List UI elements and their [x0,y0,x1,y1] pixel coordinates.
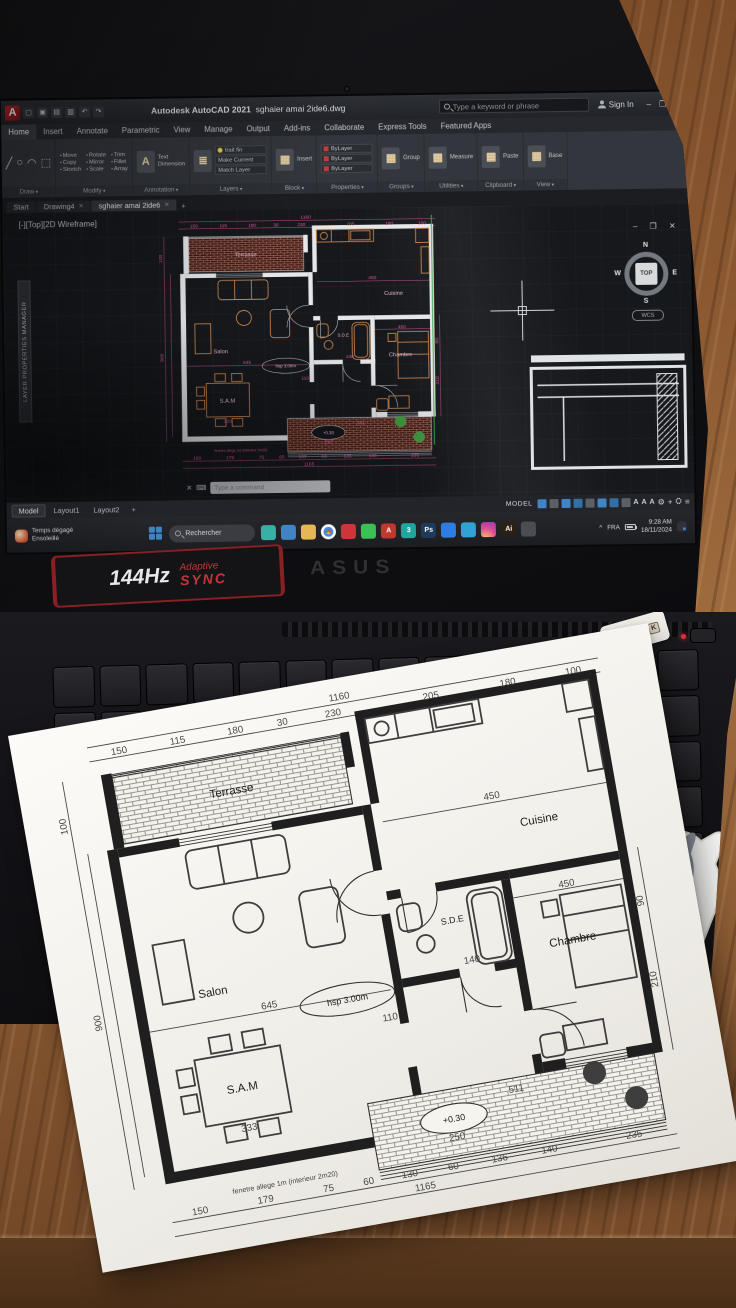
taskbar-app-3ds-max-icon[interactable]: 3 [401,523,416,538]
annotation-visibility-icon[interactable]: A [641,498,646,505]
panel-body: ▦Measure [424,133,477,181]
file-tab-start[interactable]: Start [6,201,36,212]
weather-widget[interactable]: Temps dégagé Ensoleillé [15,527,74,544]
svg-text:fenetre allege 1m (interieur 2: fenetre allege 1m (interieur 2m20) [232,1170,338,1196]
window-title: Autodesk AutoCAD 2021 sghaier amai 2ide6… [151,103,345,116]
layer-properties-icon[interactable]: ≣ [194,149,212,171]
svg-text:180: 180 [385,221,393,227]
ribbon-tab-manage[interactable]: Manage [197,121,239,137]
text-tool[interactable]: Text [158,154,185,160]
svg-text:110: 110 [382,1011,400,1025]
viewcube-south[interactable]: S [644,298,649,305]
taskbar-app-acrobat-icon[interactable] [341,523,356,538]
ribbon-panel-draw: ╱○◠⬚Draw [1,139,56,198]
close-tab-icon[interactable]: ✕ [164,201,169,208]
photo-scene: A ▢ ▣ ▤ ▥ ↶ ↷ Autodesk AutoCAD 2021 sgha… [0,0,736,1308]
transparency-toggle-icon[interactable] [621,498,630,507]
customization-menu-icon[interactable]: ≡ [685,497,690,506]
panel-title[interactable]: Utilities [425,180,477,192]
ribbon-tab-insert[interactable]: Insert [36,124,70,139]
status-bar: MODEL A A A ⚙ + ⛭ ≡ [506,496,690,509]
svg-text:645: 645 [260,999,278,1013]
snap-toggle-icon[interactable] [549,499,558,508]
plot-icon[interactable]: ▥ [65,106,76,117]
ribbon-tab-add-ins[interactable]: Add-ins [277,120,318,136]
tab-model[interactable]: Model [12,504,46,517]
svg-text:30: 30 [273,222,279,228]
taskbar-app-whatsapp-icon[interactable] [361,523,376,538]
paste-tool-icon[interactable]: ▦ [482,145,500,167]
svg-text:Cuisine: Cuisine [519,811,559,829]
bylayer-dropdown[interactable]: ByLayer [321,164,373,174]
help-search-input[interactable]: Type a keyword or phrase [439,98,589,114]
hidden-icons-caret[interactable]: ^ [599,524,602,531]
layer-tool[interactable]: Match Layer [215,165,267,175]
system-tray: ^ FRA 9:28 AM 18/11/2024 [599,518,687,535]
svg-text:136: 136 [344,453,352,459]
language-indicator[interactable]: FRA [607,524,620,531]
svg-text:Terrasse: Terrasse [235,252,257,258]
taskbar-app-file-explorer-icon[interactable] [281,524,296,539]
autocad-window: A ▢ ▣ ▤ ▥ ↶ ↷ Autodesk AutoCAD 2021 sgha… [1,91,695,553]
panel-body: ByLayerByLayerByLayer [317,135,378,183]
svg-text:S.D.E: S.D.E [338,333,350,338]
file-tab-drawing4[interactable]: Drawing4✕ [37,201,91,213]
svg-text:S.D.E: S.D.E [440,913,465,927]
svg-text:110: 110 [301,375,309,381]
user-icon [598,100,606,108]
group-tool-icon[interactable]: ▦ [382,147,400,169]
weather-line2: Ensoleillé [32,535,73,543]
battery-icon[interactable] [625,524,636,530]
command-line[interactable]: ✕ ⌨ Type a command [186,480,330,494]
search-icon [175,530,181,536]
wcs-menu[interactable]: WCS [632,310,664,321]
insert-tool-label: Insert [297,156,312,162]
panel-title[interactable]: Annotation [133,184,190,196]
taskbar-app-instagram-icon[interactable] [481,521,496,536]
webcam-dot [344,86,350,92]
panel-body: ≣trait finMake CurrentMatch Layer [190,136,272,184]
taskbar-app-illustrator-icon[interactable]: Ai [501,521,516,536]
layer-properties-palette-tab[interactable]: LAYER PROPERTIES MANAGER [17,280,32,422]
layer-tool[interactable]: Make Current [215,155,267,165]
svg-text:150: 150 [190,223,198,229]
asus-bezel-logo: ASUS [310,556,397,579]
svg-text:75: 75 [259,454,265,460]
panel-body: ATextDimension [132,137,189,185]
panel-title[interactable]: Block [272,182,316,194]
key[interactable] [657,649,700,691]
svg-text:S.A.M: S.A.M [226,1080,259,1097]
svg-text:115: 115 [169,734,187,748]
svg-text:90: 90 [634,894,647,907]
svg-text:+0.30: +0.30 [323,430,335,435]
viewcube-east[interactable]: E [672,269,677,276]
copy-tool[interactable]: Copy [60,159,81,165]
svg-text:230: 230 [324,707,342,721]
close-command-icon[interactable]: ✕ [186,484,192,492]
svg-text:60: 60 [322,454,328,460]
svg-text:130: 130 [298,454,306,460]
taskbar-app-telegram-icon[interactable] [461,522,476,537]
scale-tool[interactable]: Scale [86,166,106,172]
svg-text:Chambre: Chambre [389,352,413,358]
taskbar-app-adobe-icon[interactable]: A [381,523,396,538]
layer-dropdown[interactable]: trait fin [215,145,267,155]
panel-body: MoveRotateTrimCopyMirrorFilletStretchSca… [56,138,132,186]
polyline-tool-icon[interactable]: ○ [16,157,23,170]
cad-drawing: Terrasse Salon Cuisine S.D.E Chambre S.A… [2,203,694,503]
start-button[interactable] [149,527,163,541]
taskbar-app-folder-icon[interactable] [301,524,316,539]
drawing-canvas[interactable]: [-][Top][2D Wireframe] – ❐ ✕ LAYER PROPE… [2,203,694,503]
svg-text:179: 179 [226,455,234,461]
line-tool-icon[interactable]: ╱ [6,157,13,170]
svg-text:30: 30 [276,716,289,729]
power-button[interactable] [690,628,716,643]
search-icon [444,104,450,110]
measure-tool-label: Measure [450,154,473,160]
svg-text:Salon: Salon [197,984,228,1001]
panel-body: ▦Group [378,134,424,182]
save-icon[interactable]: ▤ [51,106,62,117]
panel-body: ╱○◠⬚ [1,139,55,187]
ribbon-tab-view[interactable]: View [166,122,197,137]
model-space-label[interactable]: MODEL [506,500,533,507]
array-tool[interactable]: Array [111,166,128,172]
viewcube[interactable]: N S W E TOP WCS [619,243,676,324]
viewcube-top-face[interactable]: TOP [635,263,657,285]
laptop-screen-assembly: A ▢ ▣ ▤ ▥ ↶ ↷ Autodesk AutoCAD 2021 sgha… [0,0,708,636]
paste-tool-label: Paste [503,153,518,159]
svg-text:1165: 1165 [414,1180,437,1195]
minimize-button[interactable]: – [647,99,652,108]
key[interactable] [99,665,142,707]
annotation-monitor-icon[interactable]: + [668,497,673,506]
mirror-tool[interactable]: Mirror [86,159,106,165]
svg-text:150: 150 [110,745,128,759]
svg-text:S.A.M: S.A.M [220,399,236,405]
svg-text:230: 230 [297,222,305,228]
layer-on-icon [218,148,223,153]
weather-icon [15,529,28,542]
panel-title[interactable]: View [524,179,567,191]
ribbon-panel-modify: MoveRotateTrimCopyMirrorFilletStretchSca… [56,138,133,197]
svg-text:900: 900 [160,353,166,361]
ortho-toggle-icon[interactable] [561,498,570,507]
ribbon-panel-layers: ≣trait finMake CurrentMatch LayerLayers [190,136,273,195]
new-file-icon[interactable]: ▢ [23,107,34,118]
panel-body: ▦Insert [272,135,317,183]
printed-floor-plan: Terrasse Salon Cuisine S.D.E Chambre S.A… [8,623,736,1273]
ribbon-tab-express-tools[interactable]: Express Tools [371,119,434,135]
svg-text:60: 60 [279,454,285,460]
ribbon-panel-annotation: ATextDimensionAnnotation [132,137,190,196]
base-tool-label: Base [549,152,563,158]
taskbar-app-edge-icon[interactable] [261,525,276,540]
ribbon-panel-properties: ByLayerByLayerByLayerProperties [317,135,379,194]
ribbon-panel-block: ▦InsertBlock [272,135,318,194]
svg-text:hsp 3.00m: hsp 3.00m [276,363,297,368]
panel-body: ▦Base [523,132,567,180]
svg-text:205: 205 [346,221,354,227]
key[interactable] [52,666,95,708]
grid-toggle-icon[interactable] [537,499,546,508]
trim-tool[interactable]: Trim [111,152,128,158]
ribbon-tab-output[interactable]: Output [239,121,277,137]
undo-icon[interactable]: ↶ [79,106,90,117]
svg-text:235: 235 [411,452,419,458]
ribbon-tab-collaborate[interactable]: Collaborate [317,120,371,136]
stretch-tool[interactable]: Stretch [60,166,81,172]
tray-date: 18/11/2024 [641,526,672,534]
fillet-tool[interactable]: Fillet [111,159,128,165]
svg-text:hsp 3.00m: hsp 3.00m [326,991,368,1008]
arc-tool-icon[interactable]: ⬚ [41,156,52,169]
svg-text:140: 140 [346,354,354,360]
floor-plan-drawing: Terrasse Salon Cuisine S.D.E Chambre S.A… [27,633,722,1263]
bylayer-dropdown[interactable]: ByLayer [321,154,373,164]
viewport-window-controls[interactable]: – ❐ ✕ [633,221,681,231]
group-tool-label: Group [403,154,420,160]
svg-text:333: 333 [224,418,232,424]
svg-text:60: 60 [363,1175,376,1188]
customize-command-icon[interactable]: ⌨ [196,484,206,492]
ribbon-panel-groups: ▦GroupGroups [378,134,425,193]
sign-in-button[interactable]: Sign In [598,99,634,109]
isolate-objects-icon[interactable]: ⛭ [675,496,682,506]
bylayer-dropdown[interactable]: ByLayer [321,144,373,154]
viewcube-west[interactable]: W [614,270,621,277]
window-controls: – ❐ ✕ [647,99,681,108]
ribbon-panel-utilities: ▦MeasureUtilities [424,133,478,192]
svg-text:333: 333 [241,1121,259,1135]
insert-tool-icon[interactable]: ▦ [276,148,294,170]
svg-text:1165: 1165 [304,461,315,467]
notification-bell-icon[interactable] [677,521,687,531]
open-icon[interactable]: ▣ [37,107,48,118]
ribbon-panel-clipboard: ▦PasteClipboard [478,133,524,192]
annotation-scale-icon[interactable]: A [633,498,638,505]
new-drawing-tab-button[interactable]: + [177,201,189,210]
panel-title[interactable]: Properties [317,182,377,194]
taskbar-app-chrome-icon[interactable] [321,524,336,539]
detail-drawing [531,353,686,468]
command-input[interactable]: Type a command [210,480,330,494]
ribbon: ╱○◠⬚DrawMoveRotateTrimCopyMirrorFilletSt… [1,130,690,198]
svg-text:Cuisine: Cuisine [384,291,403,297]
svg-text:90: 90 [434,338,440,344]
ribbon-tab-parametric[interactable]: Parametric [115,123,167,139]
close-button[interactable]: ✕ [674,99,681,108]
lineweight-toggle-icon[interactable] [609,498,618,507]
svg-text:645: 645 [243,360,251,366]
taskbar-app-messenger-icon[interactable] [441,522,456,537]
svg-text:511: 511 [357,420,365,426]
workspace-gear-icon[interactable]: ⚙ [658,497,665,506]
viewport-label[interactable]: [-][Top][2D Wireframe] [19,219,97,229]
ribbon-tab-annotate[interactable]: Annotate [70,123,115,139]
svg-text:140: 140 [463,953,481,967]
osnap-toggle-icon[interactable] [597,498,606,507]
isodraft-toggle-icon[interactable] [585,498,594,507]
svg-text:180: 180 [248,223,256,229]
new-layout-button[interactable]: + [127,504,139,513]
tab-layout2[interactable]: Layout2 [87,504,125,516]
svg-text:450: 450 [368,275,376,281]
svg-text:210: 210 [435,376,441,384]
redo-icon[interactable]: ↷ [93,106,104,117]
tab-layout1[interactable]: Layout1 [47,504,85,516]
base-tool-icon[interactable]: ▦ [527,145,545,167]
autocad-logo-icon[interactable]: A [5,105,20,120]
svg-text:450: 450 [558,877,576,891]
svg-text:75: 75 [322,1183,335,1196]
svg-text:115: 115 [219,223,227,229]
svg-text:180: 180 [226,724,244,738]
panel-body: ▦Paste [478,133,523,181]
ribbon-tab-featured-apps[interactable]: Featured Apps [433,118,498,134]
ribbon-tab-home[interactable]: Home [1,124,36,139]
svg-text:250: 250 [324,439,332,445]
svg-text:450: 450 [398,324,406,330]
taskbar-apps: A3PsAi [261,521,536,540]
svg-text:140: 140 [369,453,377,459]
key[interactable] [145,663,188,705]
restore-button[interactable]: ❐ [659,99,666,108]
svg-text:150: 150 [193,455,201,461]
crosshair-cursor [490,280,555,341]
move-tool[interactable]: Move [60,152,81,158]
autoscale-icon[interactable]: A [650,498,655,505]
svg-text:fenetre allege 1m (interieur 2: fenetre allege 1m (interieur 2m20) [215,448,268,453]
taskbar-app-settings-icon[interactable] [521,521,536,536]
dimension-tool[interactable]: Dimension [158,161,185,167]
svg-text:Chambre: Chambre [549,930,598,950]
viewcube-north[interactable]: N [643,242,648,249]
panel-title[interactable]: Clipboard [478,180,522,192]
panel-title[interactable]: Draw [2,186,55,198]
svg-text:100: 100 [418,220,426,226]
ribbon-panel-view: ▦BaseView [523,132,568,191]
taskbar-app-photoshop-icon[interactable]: Ps [421,522,436,537]
polar-toggle-icon[interactable] [573,498,582,507]
clock[interactable]: 9:28 AM 18/11/2024 [641,519,672,535]
svg-text:Salon: Salon [213,349,228,355]
measure-tool-icon[interactable]: ▦ [429,146,447,168]
close-tab-icon[interactable]: ✕ [79,203,84,210]
svg-text:100: 100 [158,254,164,262]
windows-search-input[interactable]: Rechercher [169,524,255,542]
panel-title[interactable]: Groups [378,181,424,193]
svg-text:1160: 1160 [300,214,311,220]
circle-tool-icon[interactable]: ◠ [27,156,37,169]
rotate-tool[interactable]: Rotate [86,152,106,158]
text-tool-icon[interactable]: A [137,150,155,172]
